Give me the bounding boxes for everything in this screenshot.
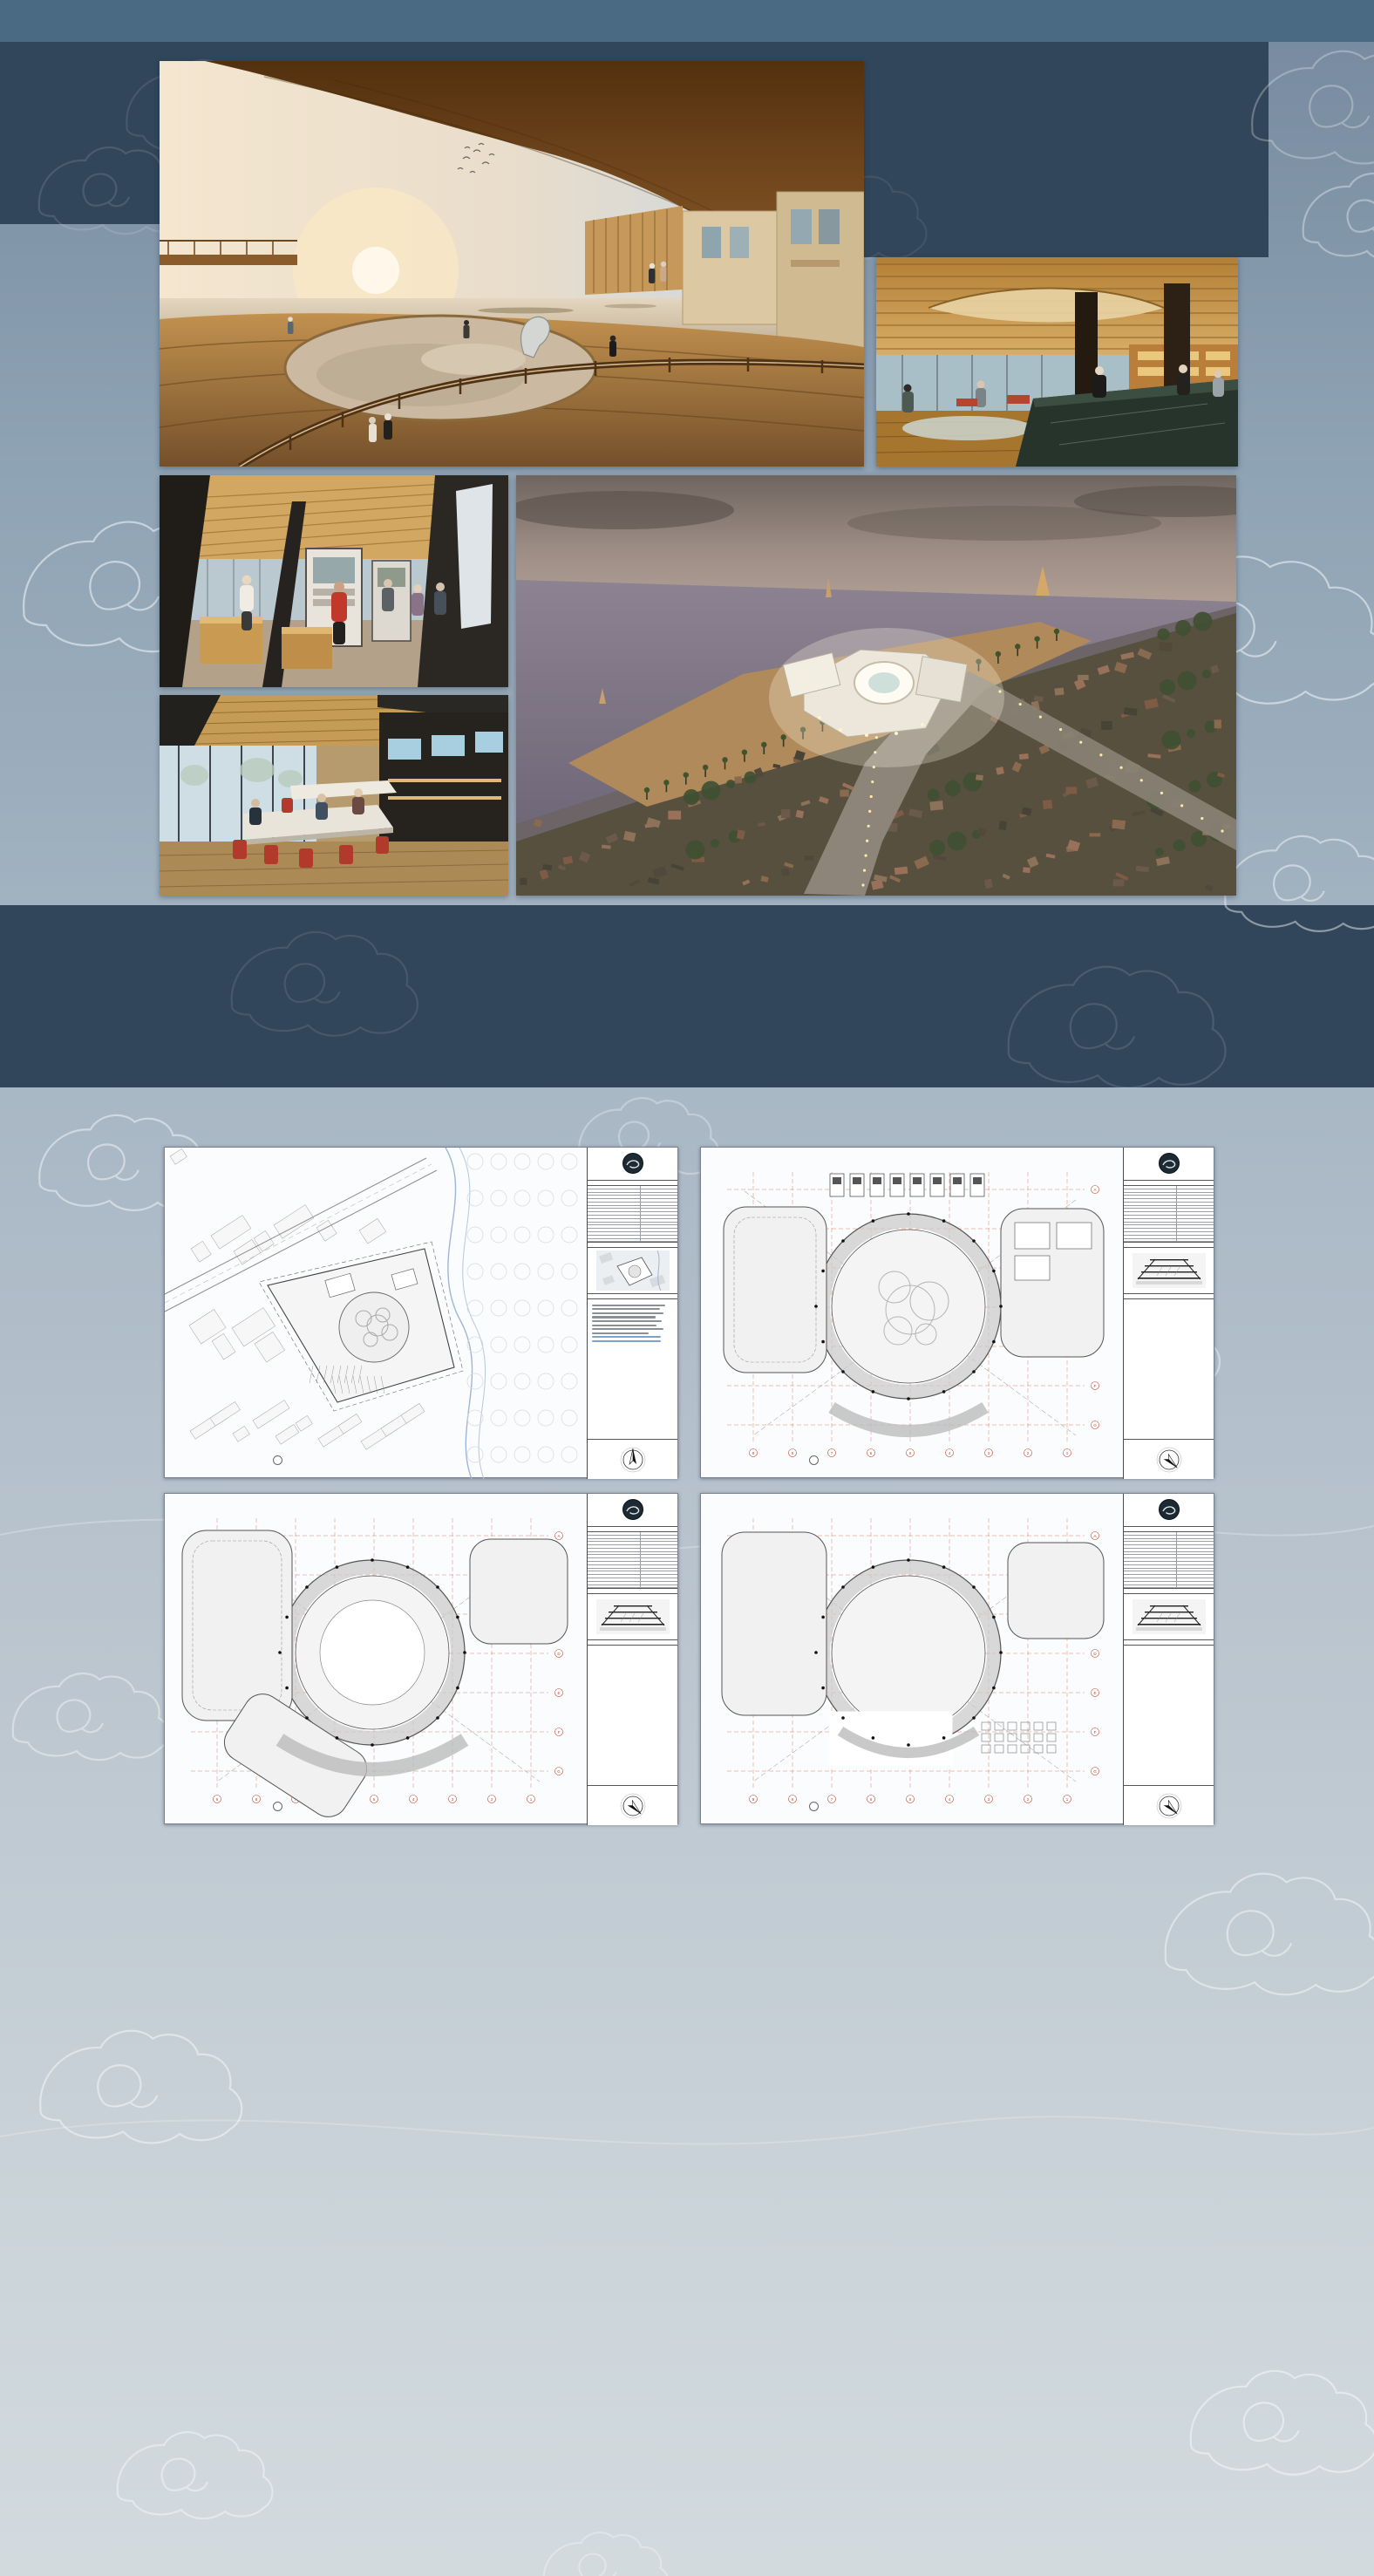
coworking-interior-render bbox=[160, 695, 508, 896]
drawings-band-extension bbox=[859, 224, 1269, 257]
svg-text:F: F bbox=[1094, 1384, 1097, 1388]
exhibition-interior-render bbox=[160, 475, 508, 687]
north-compass bbox=[588, 1785, 677, 1825]
north-arrow-icon bbox=[1153, 1444, 1185, 1475]
drawings-title bbox=[891, 75, 912, 235]
key-plan-thumbnail bbox=[1124, 1248, 1214, 1293]
top-strip bbox=[0, 0, 1374, 42]
project-logo-icon bbox=[588, 1494, 677, 1522]
north-arrow-icon bbox=[1153, 1790, 1185, 1822]
data-proyek-table bbox=[1124, 1532, 1214, 1588]
project-logo-icon bbox=[1124, 1148, 1214, 1176]
keterangan-legend bbox=[1124, 1646, 1214, 1785]
data-proyek-header bbox=[588, 1526, 677, 1532]
drawing-area bbox=[165, 1148, 588, 1479]
data-proyek-table bbox=[588, 1186, 677, 1242]
data-proyek-header bbox=[588, 1180, 677, 1186]
north-compass bbox=[588, 1439, 677, 1479]
title-line bbox=[171, 1001, 178, 1041]
data-proyek-header bbox=[1124, 1180, 1214, 1186]
keterangan-header bbox=[588, 1293, 677, 1299]
svg-text:E: E bbox=[557, 1691, 560, 1695]
key-plan-thumbnail bbox=[588, 1248, 677, 1293]
key-plan-thumbnail bbox=[588, 1594, 677, 1639]
project-logo-icon bbox=[588, 1148, 677, 1176]
title-block bbox=[1123, 1148, 1214, 1479]
north-arrow-icon bbox=[617, 1444, 649, 1475]
svg-text:G: G bbox=[1093, 1769, 1097, 1774]
keterangan-legend bbox=[588, 1646, 677, 1785]
north-compass bbox=[1124, 1785, 1214, 1825]
key-plan-thumbnail bbox=[1124, 1594, 1214, 1639]
sheet-lantai-03: 987654321ABCDEFG bbox=[700, 1493, 1214, 1824]
data-proyek-header bbox=[1124, 1526, 1214, 1532]
title-block bbox=[1123, 1494, 1214, 1825]
keterangan-legend bbox=[1124, 1299, 1214, 1439]
sheet-lantai-01: 987654321ABCDEFG bbox=[700, 1147, 1214, 1478]
title-line bbox=[164, 961, 178, 1001]
sunset-terrace-render bbox=[160, 61, 864, 467]
north-arrow-icon bbox=[617, 1790, 649, 1822]
keterangan-header bbox=[588, 1639, 677, 1646]
title-block bbox=[587, 1148, 677, 1479]
lobby-interior-render bbox=[876, 257, 1238, 467]
gambar-kunci-header bbox=[1124, 1242, 1214, 1248]
drawing-area: 987654321ABCDEFG bbox=[165, 1494, 588, 1825]
data-proyek-table bbox=[588, 1532, 677, 1588]
sheet-rencana-tapak bbox=[164, 1147, 678, 1478]
svg-text:F: F bbox=[1094, 1730, 1097, 1734]
svg-text:G: G bbox=[1093, 1423, 1097, 1428]
north-compass bbox=[1124, 1439, 1214, 1479]
project-logo-icon bbox=[1124, 1494, 1214, 1522]
aerial-site-render bbox=[516, 475, 1236, 896]
drawing-area: 987654321ABCDEFG bbox=[701, 1148, 1125, 1479]
keterangan-header bbox=[1124, 1293, 1214, 1299]
building-complex bbox=[769, 628, 1004, 767]
drawing-area: 987654321ABCDEFG bbox=[701, 1494, 1125, 1825]
keterangan-legend bbox=[588, 1299, 677, 1439]
svg-text:A: A bbox=[557, 1534, 560, 1538]
gambar-kunci-header bbox=[588, 1242, 677, 1248]
details-title bbox=[157, 921, 178, 1081]
details-band bbox=[0, 905, 1374, 1087]
title-line bbox=[891, 75, 912, 115]
gambar-kunci-header bbox=[1124, 1588, 1214, 1594]
data-proyek-table bbox=[1124, 1186, 1214, 1242]
portfolio-page: 987654321ABCDEFG987654321ABCDEFG98765432… bbox=[0, 0, 1374, 2576]
keterangan-header bbox=[1124, 1639, 1214, 1646]
svg-text:F: F bbox=[558, 1730, 561, 1734]
svg-text:A: A bbox=[1093, 1188, 1096, 1192]
title-line bbox=[898, 115, 912, 155]
svg-text:G: G bbox=[557, 1769, 561, 1774]
title-line bbox=[157, 921, 178, 961]
gambar-kunci-header bbox=[588, 1588, 677, 1594]
sheet-lantai-02: 987654321ABCDEFG bbox=[164, 1493, 678, 1824]
svg-text:E: E bbox=[1093, 1691, 1096, 1695]
svg-text:A: A bbox=[1093, 1534, 1096, 1538]
title-block bbox=[587, 1494, 677, 1825]
title-line bbox=[905, 155, 912, 195]
